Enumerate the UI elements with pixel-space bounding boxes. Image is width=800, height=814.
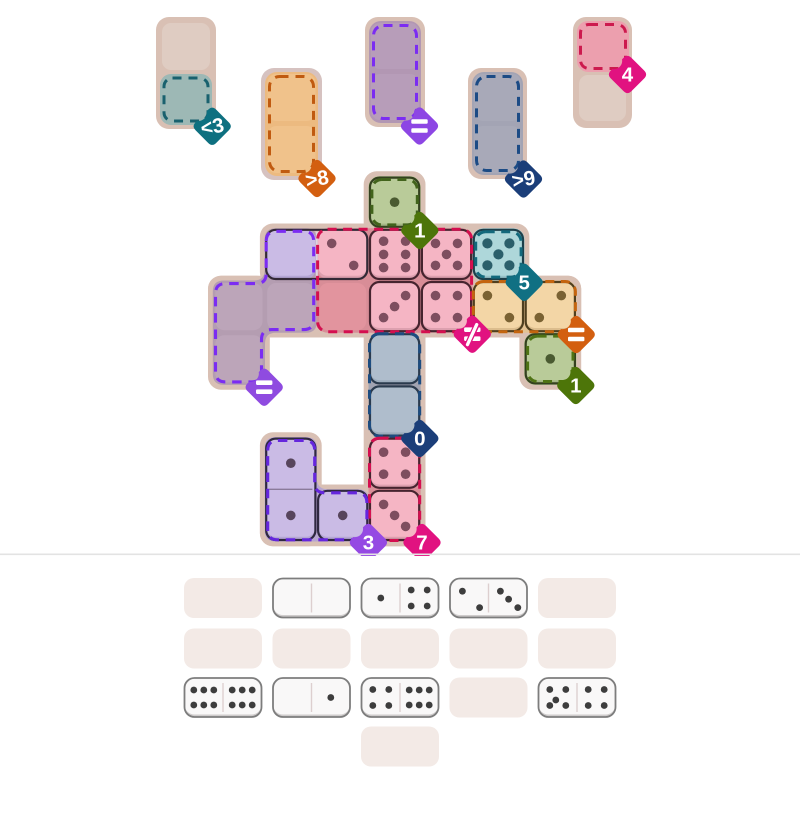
svg-text:>8: >8 — [304, 166, 331, 193]
svg-text:<3: <3 — [199, 114, 226, 141]
svg-text:3: 3 — [363, 532, 374, 555]
svg-text:>9: >9 — [510, 166, 537, 193]
svg-text:7: 7 — [416, 532, 427, 555]
svg-text:5: 5 — [518, 272, 529, 295]
svg-text:1: 1 — [414, 220, 425, 243]
svg-text:0: 0 — [414, 428, 425, 451]
svg-text:1: 1 — [570, 375, 581, 398]
svg-text:4: 4 — [622, 64, 634, 87]
